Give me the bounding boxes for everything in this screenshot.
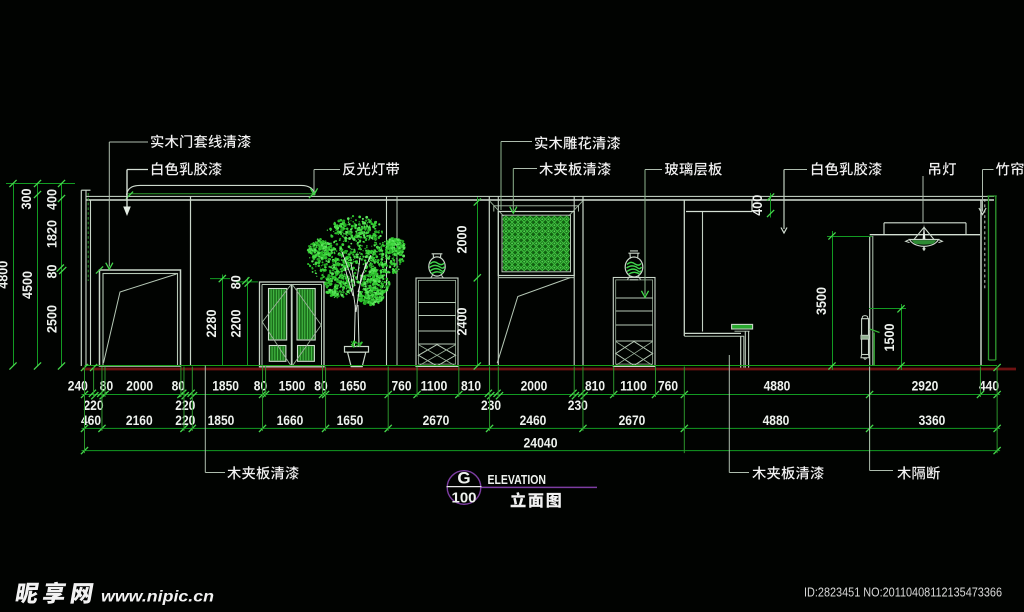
svg-text:www.nipic.cn: www.nipic.cn [101,589,214,606]
svg-text:810: 810 [585,379,605,394]
svg-text:1850: 1850 [208,413,235,428]
svg-text:760: 760 [391,379,411,394]
svg-text:G: G [457,469,470,488]
svg-text:2460: 2460 [520,413,547,428]
svg-text:4500: 4500 [20,271,35,299]
svg-text:4880: 4880 [764,379,791,394]
svg-text:1650: 1650 [340,379,367,394]
svg-text:2670: 2670 [619,413,646,428]
svg-text:24040: 24040 [524,435,558,450]
svg-text:2920: 2920 [912,379,939,394]
svg-text:2000: 2000 [455,226,470,254]
svg-text:1500: 1500 [279,379,306,394]
svg-text:300: 300 [19,189,34,210]
svg-text:1500: 1500 [882,324,897,352]
svg-text:220: 220 [83,398,103,413]
svg-text:400: 400 [44,189,59,210]
svg-text:230: 230 [568,398,588,413]
svg-text:460: 460 [81,413,101,428]
svg-text:1850: 1850 [212,379,239,394]
svg-text:2500: 2500 [44,305,59,333]
svg-text:230: 230 [481,398,501,413]
svg-text:4880: 4880 [763,413,790,428]
svg-text:1660: 1660 [277,413,304,428]
svg-text:2280: 2280 [204,310,219,338]
svg-text:1100: 1100 [421,379,448,394]
svg-text:760: 760 [658,379,678,394]
svg-text:400: 400 [750,195,765,216]
svg-text:2200: 2200 [228,310,243,338]
svg-text:80: 80 [172,379,185,394]
svg-text:80: 80 [228,275,243,289]
svg-text:810: 810 [461,379,481,394]
svg-text:440: 440 [979,379,999,394]
svg-text:2000: 2000 [521,379,548,394]
svg-text:1820: 1820 [44,220,59,248]
svg-text:100: 100 [452,489,477,506]
svg-text:2400: 2400 [455,308,470,336]
svg-text:2000: 2000 [126,379,153,394]
svg-text:1650: 1650 [337,413,364,428]
svg-text:1100: 1100 [620,379,647,394]
svg-text:2160: 2160 [126,413,153,428]
svg-text:3360: 3360 [919,413,946,428]
svg-text:ID:2823451 NO:2011040811213547: ID:2823451 NO:20110408112135473366 [804,586,1002,600]
svg-text:80: 80 [44,265,59,279]
svg-text:4800: 4800 [0,261,11,289]
svg-text:2670: 2670 [423,413,450,428]
svg-text:3500: 3500 [814,287,829,315]
svg-text:ELEVATION: ELEVATION [488,472,547,487]
